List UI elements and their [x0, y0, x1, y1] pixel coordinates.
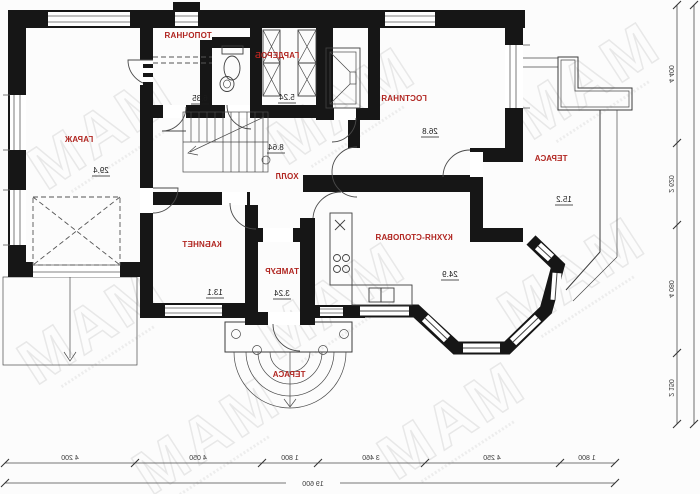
- porch-column: [253, 346, 262, 355]
- watermark-logo: МАМ: [498, 10, 670, 155]
- door-living-terrace: [443, 150, 470, 177]
- dim-bottom-4: 3 460: [362, 455, 380, 462]
- dim-side-1: 4 400: [667, 65, 674, 83]
- wc-sink: [220, 77, 234, 92]
- room-area-terrace-right: 15.2: [556, 195, 572, 204]
- watermark-logo: МАМ: [13, 60, 185, 205]
- room-area-vestibule: 3.24: [274, 289, 290, 298]
- dim-side-3: 4 080: [667, 280, 674, 298]
- dim-bottom-total: 19 600: [302, 481, 324, 488]
- room-label-living: ГОСТИНАЯ: [381, 94, 427, 103]
- room-area-cabinet: 13.1: [207, 288, 223, 297]
- room-label-terrace-front: ТЕРАСА: [272, 370, 305, 379]
- room-label-vestibule: ТАМБУР: [265, 267, 299, 276]
- dim-bottom-1: 4 200: [61, 455, 79, 462]
- watermark-logo: МАМ: [243, 230, 415, 375]
- room-area-wardrobe: 5.24: [279, 93, 295, 102]
- room-label-boiler: ТОПОЧНАЯ: [164, 31, 211, 40]
- dim-side-4: 2 150: [667, 379, 674, 397]
- room-area-boiler: 6.35: [192, 94, 208, 103]
- room-area-garage: 29.4: [93, 166, 109, 175]
- porch-column: [232, 330, 241, 339]
- window: [385, 12, 435, 26]
- watermark-logo: МАМ: [118, 365, 290, 494]
- chimney-stub: [173, 2, 200, 12]
- window: [10, 95, 26, 150]
- room-label-wardrobe: ГАРДЕРОБ: [255, 51, 300, 60]
- watermark-logo: МАМ: [483, 205, 655, 350]
- floor-plan-canvas: МАМ МАМ МАМ МАМ МАМ МАМ МАМ МАМ: [0, 0, 700, 494]
- dim-side-2: 2 620: [667, 175, 674, 193]
- room-area-living: 26.8: [422, 127, 438, 136]
- dim-bottom-3: 1 800: [281, 455, 299, 462]
- window: [320, 307, 343, 316]
- dim-bottom-6: 1 800: [578, 455, 596, 462]
- window: [10, 190, 26, 245]
- window: [48, 12, 130, 26]
- window: [165, 305, 222, 316]
- room-label-kitchen: КУХНЯ-СТОЛОВАЯ: [375, 233, 452, 242]
- room-label-hall: ХОЛЛ: [275, 172, 298, 181]
- room-label-cabinet: КАБИНЕТ: [182, 240, 222, 249]
- window: [505, 45, 523, 108]
- dim-bottom-5: 4 250: [483, 455, 501, 462]
- room-area-kitchen: 24.9: [442, 270, 458, 279]
- floor-plan-page: МАМ МАМ МАМ МАМ МАМ МАМ МАМ МАМ: [0, 0, 700, 494]
- window: [175, 12, 198, 26]
- room-area-hall: 8.64: [268, 143, 284, 152]
- dim-bottom-2: 4 050: [189, 455, 207, 462]
- watermark-logo: МАМ: [363, 350, 535, 494]
- door-kitchen: [313, 192, 341, 218]
- parking-spot: [33, 197, 120, 265]
- room-label-garage: ГАРАЖ: [64, 135, 93, 144]
- room-label-terrace-right: ТЕРАСА: [534, 154, 567, 163]
